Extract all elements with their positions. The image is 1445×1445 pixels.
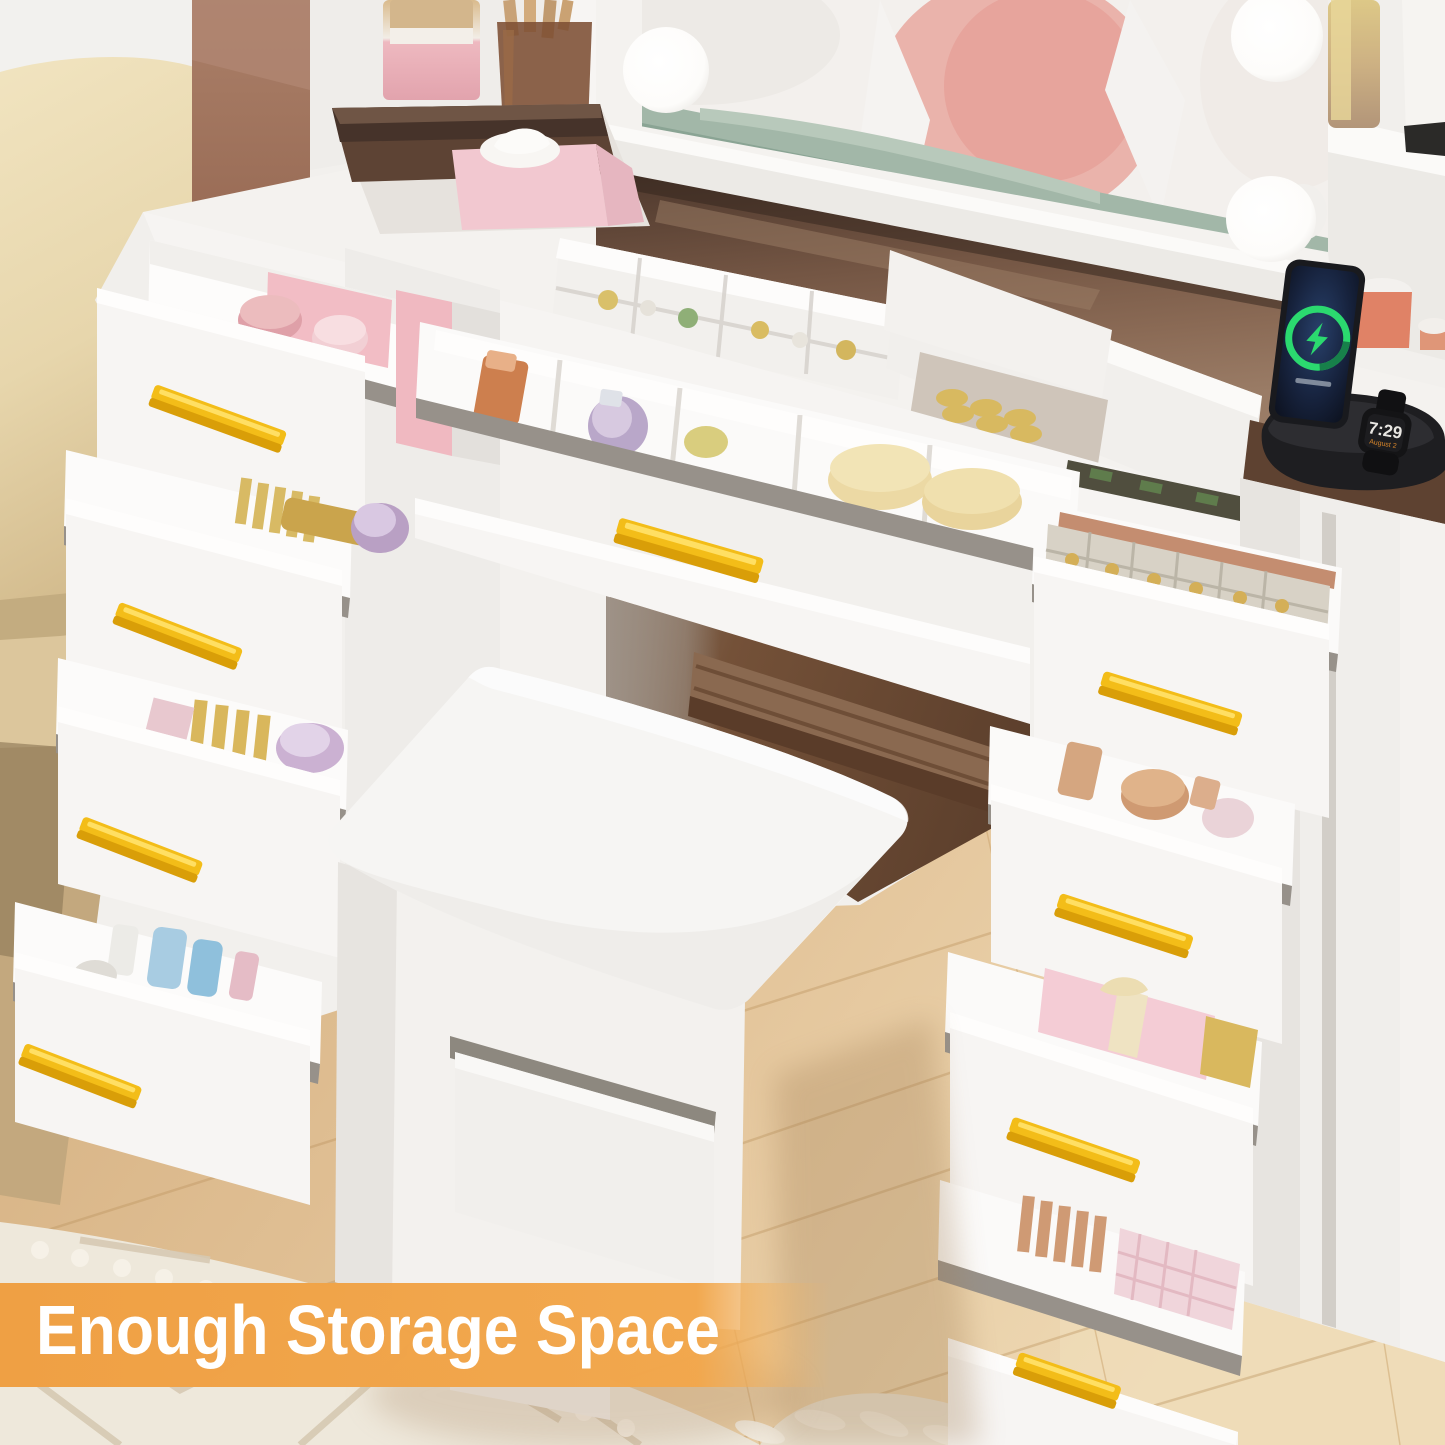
svg-text:Enough Storage Space: Enough Storage Space bbox=[36, 1291, 720, 1369]
